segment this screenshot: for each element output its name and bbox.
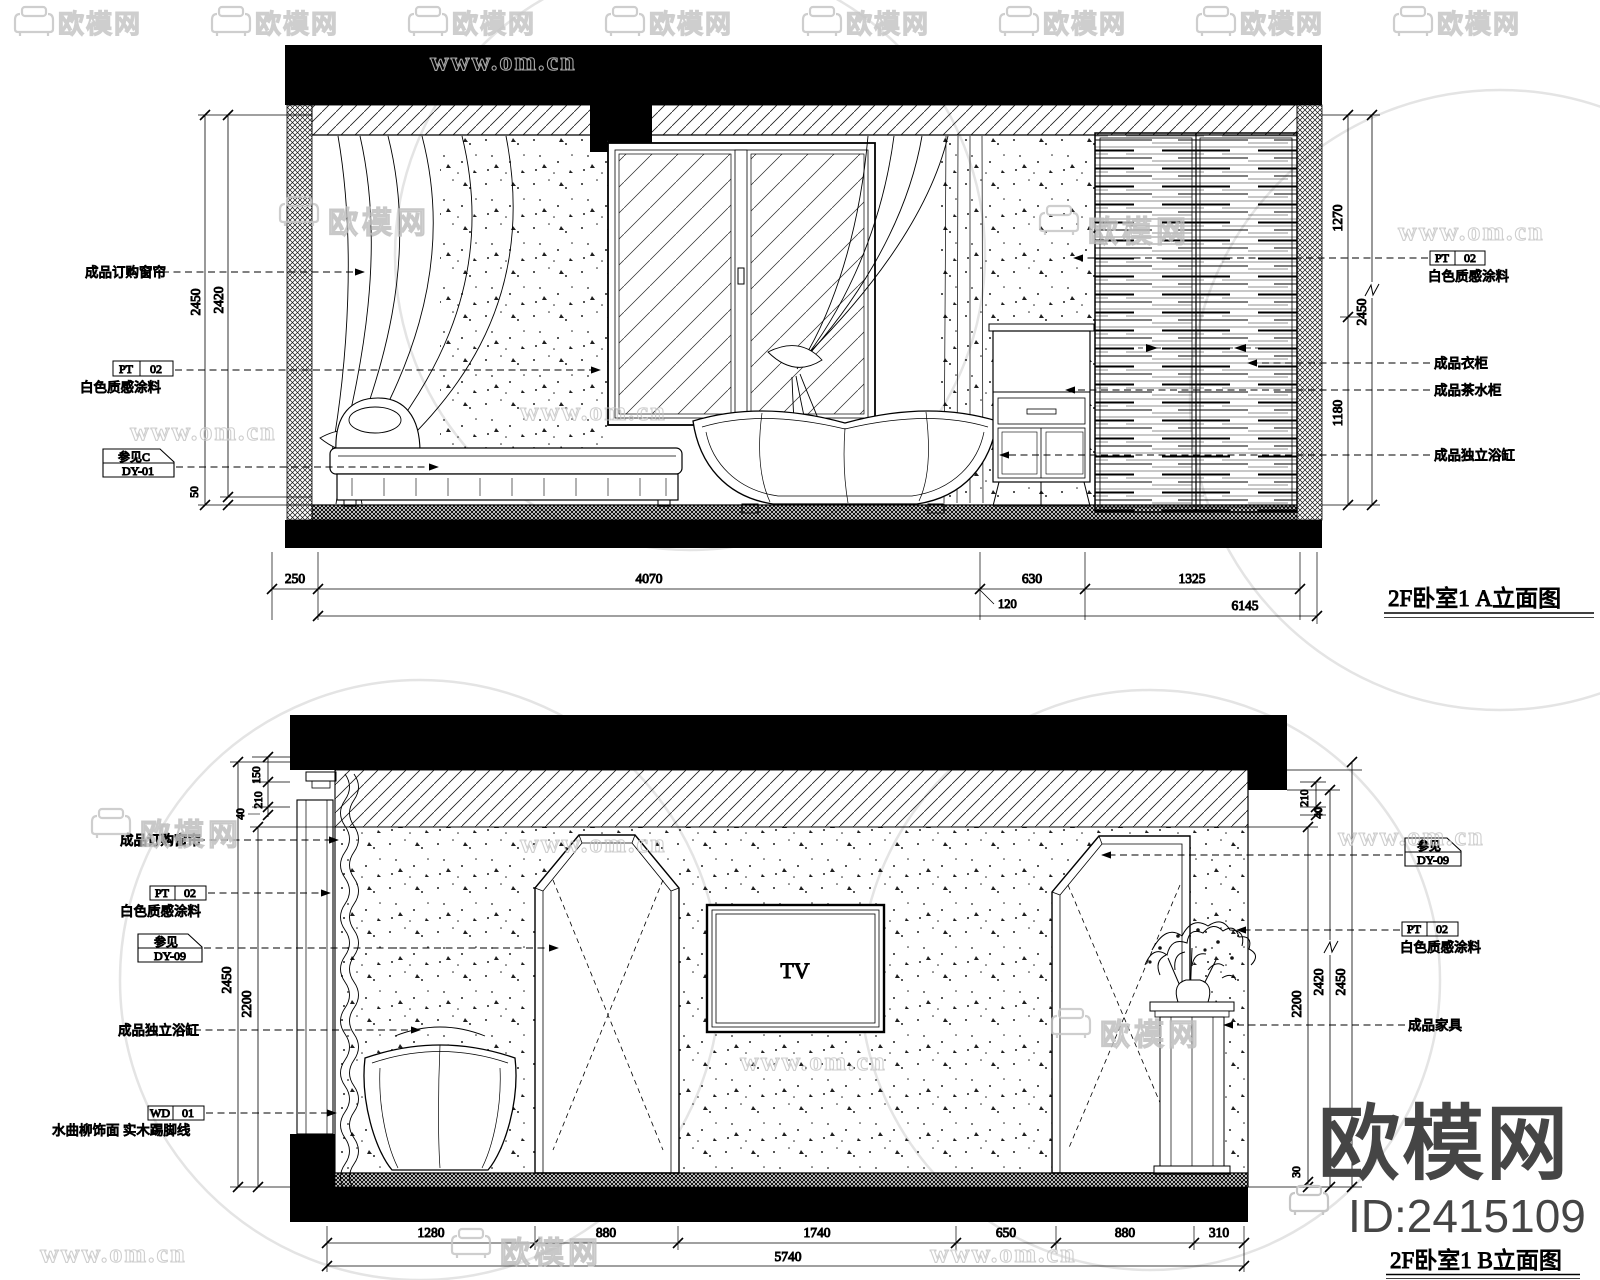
wall-section-right [1297, 105, 1322, 520]
svg-text:1280: 1280 [418, 1225, 445, 1240]
elevation-a: 成品订购窗帘 PT 02 白色质感涂料 参见C DY-01 PT 02 白色质感… [80, 45, 1594, 624]
svg-text:白色质感涂料: 白色质感涂料 [1400, 939, 1481, 955]
svg-text:PT: PT [1407, 922, 1422, 936]
svg-text:310: 310 [1209, 1225, 1230, 1240]
title-elevation-b: 2F卧室1 B立面图 [1386, 1248, 1580, 1279]
svg-text:欧模网: 欧模网 [1240, 9, 1324, 39]
label-tea-cabinet: 成品茶水柜 [1434, 383, 1502, 398]
wall-section-left [287, 105, 312, 520]
svg-text:2450: 2450 [1354, 298, 1369, 325]
tea-cabinet [989, 324, 1094, 506]
svg-text:白色质感涂料: 白色质感涂料 [120, 903, 201, 919]
floor-slab-b [290, 1187, 1248, 1222]
svg-text:880: 880 [1115, 1225, 1136, 1240]
svg-text:欧模网: 欧模网 [1100, 1019, 1202, 1052]
svg-text:欧模网: 欧模网 [1043, 9, 1127, 39]
beam-step-right [1248, 770, 1287, 790]
svg-text:120: 120 [998, 597, 1017, 611]
svg-text:02: 02 [150, 362, 162, 376]
svg-text:WD: WD [150, 1106, 170, 1120]
svg-text:30: 30 [1291, 1166, 1303, 1178]
svg-text:650: 650 [996, 1225, 1017, 1240]
dims-a-right [1322, 110, 1380, 510]
svg-text:DY-09: DY-09 [1417, 853, 1449, 867]
tv: TV [707, 905, 884, 1032]
svg-text:1270: 1270 [1330, 204, 1345, 231]
svg-text:150: 150 [251, 766, 263, 784]
label-bathtub-b: 成品独立浴缸 [118, 1022, 199, 1038]
label-bathtub-a: 成品独立浴缸 [1434, 447, 1515, 463]
material-tag-pt02: PT 02 白色质感涂料 [80, 361, 173, 395]
svg-text:参见C: 参见C [118, 449, 150, 464]
ref-tag-dy01: 参见C DY-01 [103, 449, 174, 478]
wall-return-panel [297, 800, 333, 1134]
svg-text:www.om.cn: www.om.cn [430, 47, 577, 76]
svg-text:1325: 1325 [1179, 571, 1206, 586]
svg-text:白色质感涂料: 白色质感涂料 [80, 379, 161, 395]
dims-a-bottom [267, 552, 1322, 624]
svg-text:参见: 参见 [154, 934, 178, 949]
title-elevation-a: 2F卧室1 A立面图 [1384, 586, 1594, 618]
svg-text:02: 02 [1436, 922, 1448, 936]
site-id-block: 欧模网 ID:2415109 [1290, 1099, 1586, 1242]
svg-text:250: 250 [285, 571, 306, 586]
svg-text:2450: 2450 [188, 288, 203, 315]
ceiling-hatch-b [335, 770, 1248, 827]
svg-text:www.om.cn: www.om.cn [520, 397, 667, 426]
model-id: ID:2415109 [1348, 1190, 1586, 1242]
beam-section-top-b [290, 715, 1287, 770]
floor-hatch [312, 505, 1297, 520]
svg-text:白色质感涂料: 白色质感涂料 [1428, 268, 1509, 284]
material-tag-pt02-right: PT 02 白色质感涂料 [1428, 251, 1509, 284]
svg-text:2450: 2450 [1333, 968, 1348, 995]
svg-text:6145: 6145 [1232, 598, 1259, 613]
label-furniture: 成品家具 [1408, 1017, 1462, 1033]
svg-text:欧模网: 欧模网 [140, 819, 242, 852]
svg-text:欧模网: 欧模网 [846, 9, 930, 39]
material-tag-wd01: WD 01 水曲柳饰面 实木踢脚线 [52, 1106, 204, 1138]
svg-text:www.om.cn: www.om.cn [740, 1047, 887, 1076]
ref-tag-dy09-left: 参见 DY-09 [138, 934, 202, 963]
window-handle-icon [738, 268, 744, 284]
svg-text:1180: 1180 [1330, 400, 1345, 427]
svg-text:01: 01 [182, 1106, 194, 1120]
svg-text:欧模网: 欧模网 [58, 9, 142, 39]
svg-text:PT: PT [1435, 251, 1450, 265]
window [608, 143, 875, 425]
floor-hatch-b [335, 1173, 1248, 1187]
svg-text:欧模网: 欧模网 [500, 1237, 602, 1270]
label-wardrobe: 成品衣柜 [1434, 356, 1488, 371]
cad-sheet: 成品订购窗帘 PT 02 白色质感涂料 参见C DY-01 PT 02 白色质感… [0, 0, 1600, 1280]
svg-text:DY-01: DY-01 [122, 464, 154, 478]
svg-text:www.om.cn: www.om.cn [130, 417, 277, 446]
floor-slab [285, 520, 1322, 548]
ceiling-hatch [312, 105, 1297, 135]
svg-text:1740: 1740 [804, 1225, 831, 1240]
svg-text:欧模网: 欧模网 [328, 207, 430, 240]
wall-corner-black [290, 1134, 335, 1187]
svg-text:DY-09: DY-09 [154, 949, 186, 963]
svg-text:www.om.cn: www.om.cn [930, 1239, 1077, 1268]
svg-text:PT: PT [155, 886, 170, 900]
svg-text:欧模网: 欧模网 [1437, 9, 1521, 39]
svg-text:210: 210 [1299, 789, 1311, 807]
svg-text:www.om.cn: www.om.cn [1338, 822, 1485, 851]
door-1 [535, 835, 679, 1173]
svg-text:5740: 5740 [775, 1249, 802, 1264]
svg-text:2420: 2420 [1311, 968, 1326, 995]
svg-text:欧模网: 欧模网 [649, 9, 733, 39]
svg-text:40: 40 [235, 808, 247, 820]
curtain-track-detail [306, 772, 336, 788]
svg-text:02: 02 [1464, 251, 1476, 265]
svg-text:630: 630 [1022, 571, 1043, 586]
svg-text:02: 02 [184, 886, 196, 900]
svg-text:PT: PT [119, 362, 134, 376]
svg-text:2450: 2450 [219, 966, 234, 993]
svg-text:欧模网: 欧模网 [452, 9, 536, 39]
svg-text:2200: 2200 [1289, 990, 1304, 1017]
svg-text:2F卧室1 A立面图: 2F卧室1 A立面图 [1388, 586, 1561, 611]
svg-text:4070: 4070 [636, 571, 663, 586]
svg-text:欧模网: 欧模网 [1088, 216, 1190, 249]
svg-text:210: 210 [253, 791, 265, 809]
svg-text:www.om.cn: www.om.cn [40, 1239, 187, 1268]
svg-text:2F卧室1 B立面图: 2F卧室1 B立面图 [1390, 1248, 1562, 1273]
label-curtain-a: 成品订购窗帘 [85, 264, 166, 280]
svg-text:www.om.cn: www.om.cn [520, 829, 667, 858]
svg-text:TV: TV [780, 958, 809, 983]
site-brand: 欧模网 [1318, 1099, 1570, 1190]
svg-text:40: 40 [1313, 807, 1325, 819]
svg-text:水曲柳饰面 实木踢脚线: 水曲柳饰面 实木踢脚线 [52, 1123, 190, 1138]
svg-text:欧模网: 欧模网 [255, 9, 339, 39]
material-tag-pt02-b-right: PT 02 白色质感涂料 [1400, 922, 1481, 955]
svg-text:2420: 2420 [211, 286, 226, 313]
svg-text:50: 50 [189, 486, 201, 498]
svg-text:www.om.cn: www.om.cn [1398, 217, 1545, 246]
svg-text:2200: 2200 [239, 990, 254, 1017]
